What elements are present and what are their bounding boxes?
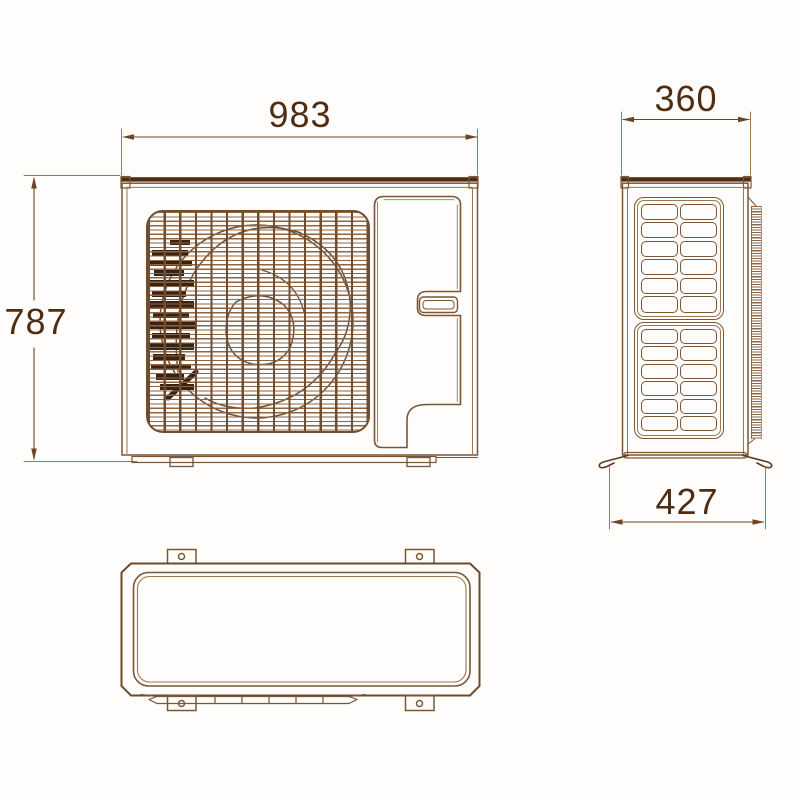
vent-slot xyxy=(641,222,678,238)
dim-front-width: 983 xyxy=(122,94,478,175)
dim-front-height-label: 787 xyxy=(4,301,67,342)
vent-slot xyxy=(680,204,717,220)
vent-slot xyxy=(641,416,678,431)
vent-slot xyxy=(641,241,678,257)
mounting-hole xyxy=(417,554,423,560)
vent-slot xyxy=(641,399,678,414)
side-condenser-fins xyxy=(751,206,763,439)
vent-slot xyxy=(641,259,678,275)
vent-panel-frame xyxy=(637,200,721,317)
mounting-tab xyxy=(168,550,197,565)
plan-view xyxy=(122,550,480,711)
vent-slot-grid xyxy=(641,204,717,313)
panel-handle xyxy=(420,297,458,313)
mounting-tab xyxy=(406,550,435,565)
vent-slot xyxy=(680,222,717,238)
vent-slot xyxy=(680,364,717,379)
vent-slot xyxy=(680,399,717,414)
side-vent-panel-lower xyxy=(634,322,724,439)
front-fan-grille xyxy=(146,210,370,433)
vent-slot xyxy=(641,204,678,220)
side-vent-panel-upper xyxy=(634,197,724,320)
vent-slot xyxy=(641,364,678,379)
vent-slot xyxy=(680,241,717,257)
side-top-cap xyxy=(621,177,751,189)
vent-panel-frame xyxy=(637,325,721,436)
vent-slot xyxy=(680,259,717,275)
dim-side-width-label: 360 xyxy=(654,78,717,119)
vent-slot xyxy=(641,381,678,396)
dim-side-depth: 427 xyxy=(610,467,766,529)
service-panel xyxy=(375,197,461,448)
side-foot-left xyxy=(599,456,628,468)
vent-slot xyxy=(680,381,717,396)
plan-outer-outline xyxy=(122,564,480,696)
vent-slot xyxy=(680,346,717,361)
front-top-cap xyxy=(121,177,478,189)
vent-slot xyxy=(680,296,717,312)
dimension-drawing-canvas: 983 787 xyxy=(0,0,800,800)
dim-front-height: 787 xyxy=(4,176,137,462)
dim-side-depth-label: 427 xyxy=(655,481,718,522)
vent-slot xyxy=(680,329,717,344)
front-base-and-feet xyxy=(132,457,478,467)
plan-mounting-tabs xyxy=(168,550,435,565)
mounting-tab xyxy=(406,696,435,711)
vent-slot-grid xyxy=(641,329,717,432)
service-panel-outline xyxy=(375,197,461,448)
vent-slot xyxy=(641,296,678,312)
vent-slot xyxy=(641,329,678,344)
mounting-hole xyxy=(417,701,423,707)
dim-side-width: 360 xyxy=(622,78,751,175)
vent-slot xyxy=(641,346,678,361)
vent-slot xyxy=(680,416,717,431)
dim-front-width-label: 983 xyxy=(268,94,331,135)
side-foot-right xyxy=(743,456,772,468)
vent-slot xyxy=(641,278,678,294)
mounting-hole xyxy=(179,554,185,560)
vent-slot xyxy=(680,278,717,294)
